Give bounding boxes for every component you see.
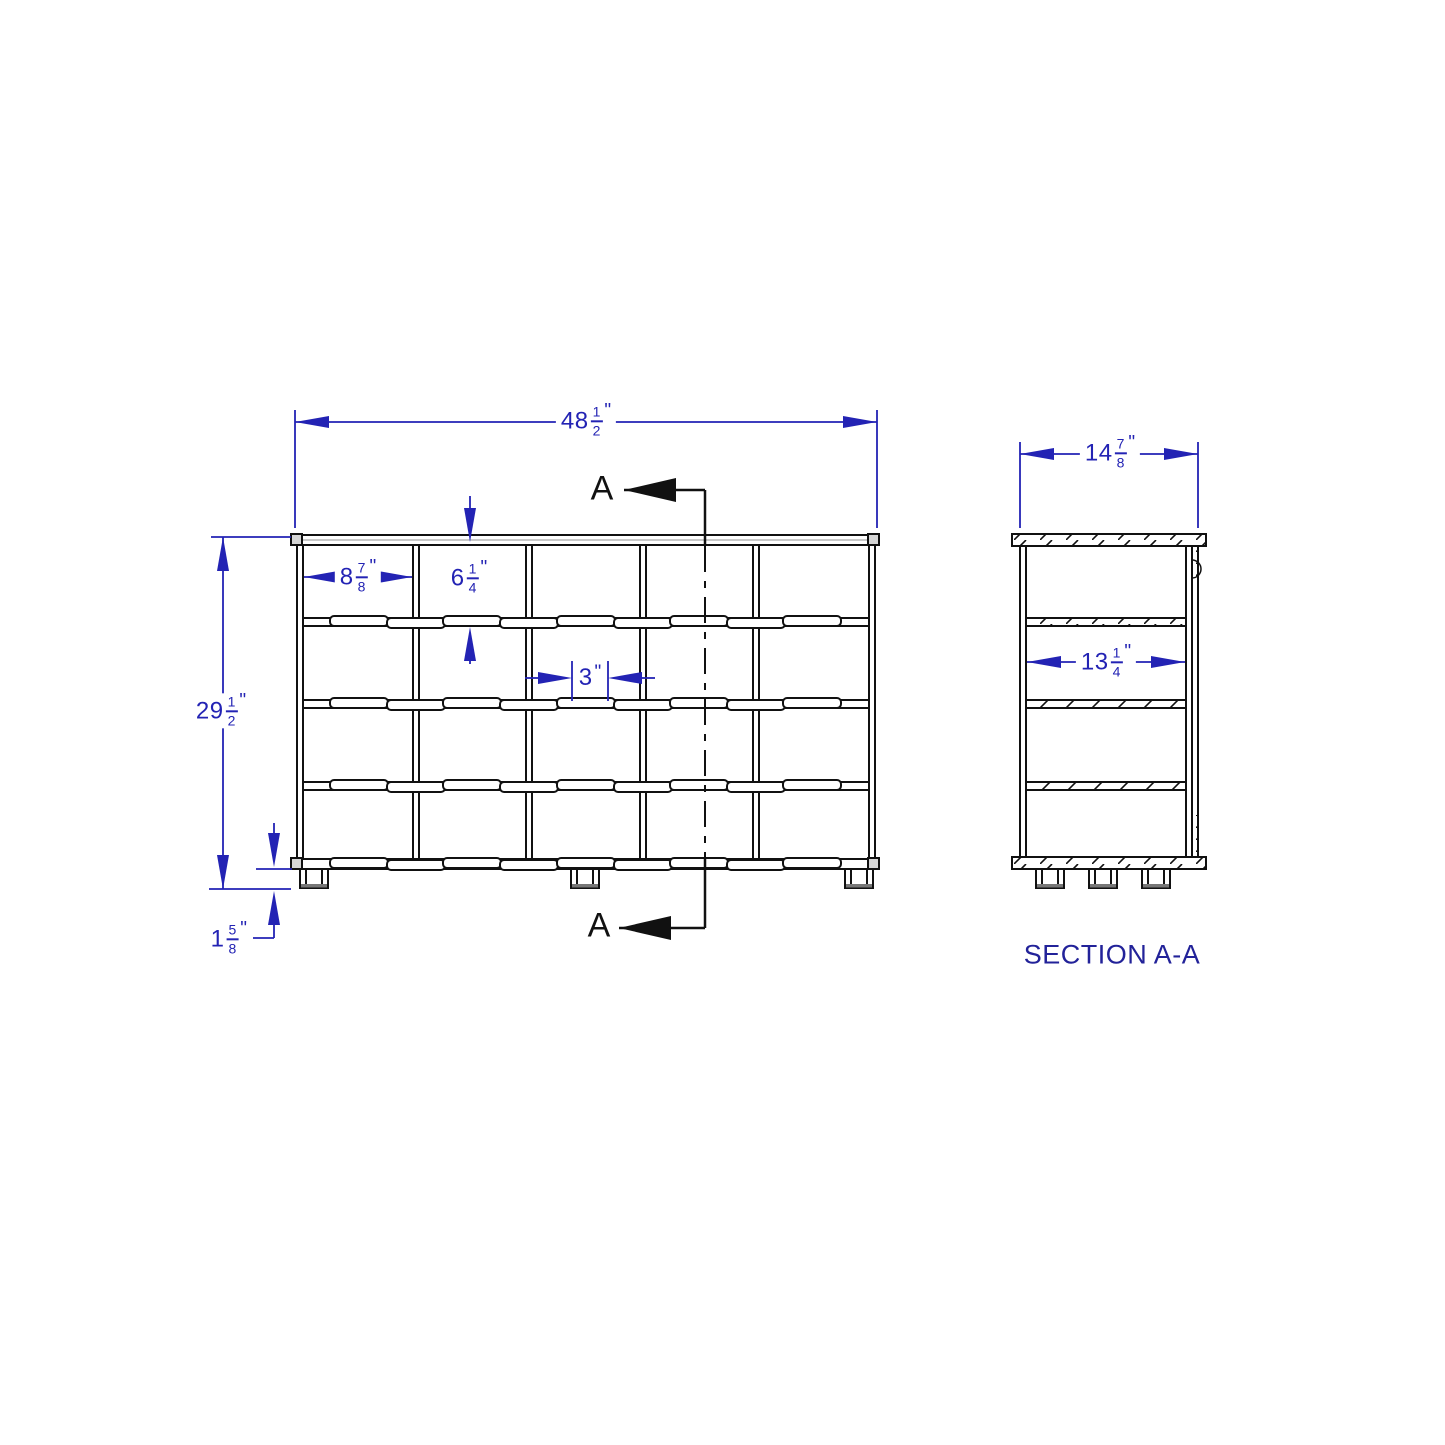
inch-mark: ": [480, 558, 487, 577]
section-view-legs: [1036, 869, 1170, 888]
inch-mark: ": [240, 919, 247, 938]
dim-fraction: 5 8: [226, 922, 238, 955]
dim-depth-label: 14 7 8 ": [1080, 435, 1140, 470]
front-view-top-panel: [291, 534, 879, 545]
dim-overall-height-label: 29 1 2 ": [191, 693, 251, 728]
dim-value: 29: [196, 699, 224, 723]
dim-value: 48: [561, 409, 589, 433]
inch-mark: ": [595, 663, 602, 682]
section-view: [1012, 534, 1206, 888]
dim-value: 6: [451, 566, 465, 590]
dim-overall-width-label: 48 1 2 ": [556, 403, 616, 438]
dim-spacing-label: 3 ": [577, 665, 604, 691]
inch-mark: ": [1128, 433, 1135, 452]
section-view-title: SECTION A-A: [1024, 940, 1201, 971]
dim-value: 8: [340, 565, 354, 589]
dim-fraction: 7 8: [356, 560, 368, 593]
dim-fraction: 1 4: [467, 561, 479, 594]
drawing-page: 48 1 2 " 29 1 2 " 8 7 8 " 6 1 4 " 3 " 1 …: [0, 0, 1445, 1445]
dim-cubby-width-label: 8 7 8 ": [335, 559, 381, 594]
dim-leg-height-label: 1 5 8 ": [206, 921, 252, 956]
front-view-shelves: [303, 616, 869, 792]
dim-cubby-height-label: 6 1 4 ": [446, 560, 492, 595]
front-view-legs: [300, 869, 873, 888]
inch-mark: ": [369, 557, 376, 576]
section-marker-top: A: [591, 470, 614, 509]
section-marker-bottom: A: [588, 907, 611, 946]
dim-value: 14: [1085, 441, 1113, 465]
inch-mark: ": [1124, 642, 1131, 661]
inch-mark: ": [604, 401, 611, 420]
dim-fraction: 1 2: [591, 404, 603, 437]
dim-fraction: 1 4: [1111, 645, 1123, 678]
inch-mark: ": [239, 691, 246, 710]
dim-value: 13: [1081, 650, 1109, 674]
dim-value: 1: [211, 927, 225, 951]
dim-inner-width-label: 13 1 4 ": [1076, 644, 1136, 679]
dim-fraction: 7 8: [1115, 436, 1127, 469]
dim-value: 3: [579, 666, 593, 690]
dim-fraction: 1 2: [226, 694, 238, 727]
